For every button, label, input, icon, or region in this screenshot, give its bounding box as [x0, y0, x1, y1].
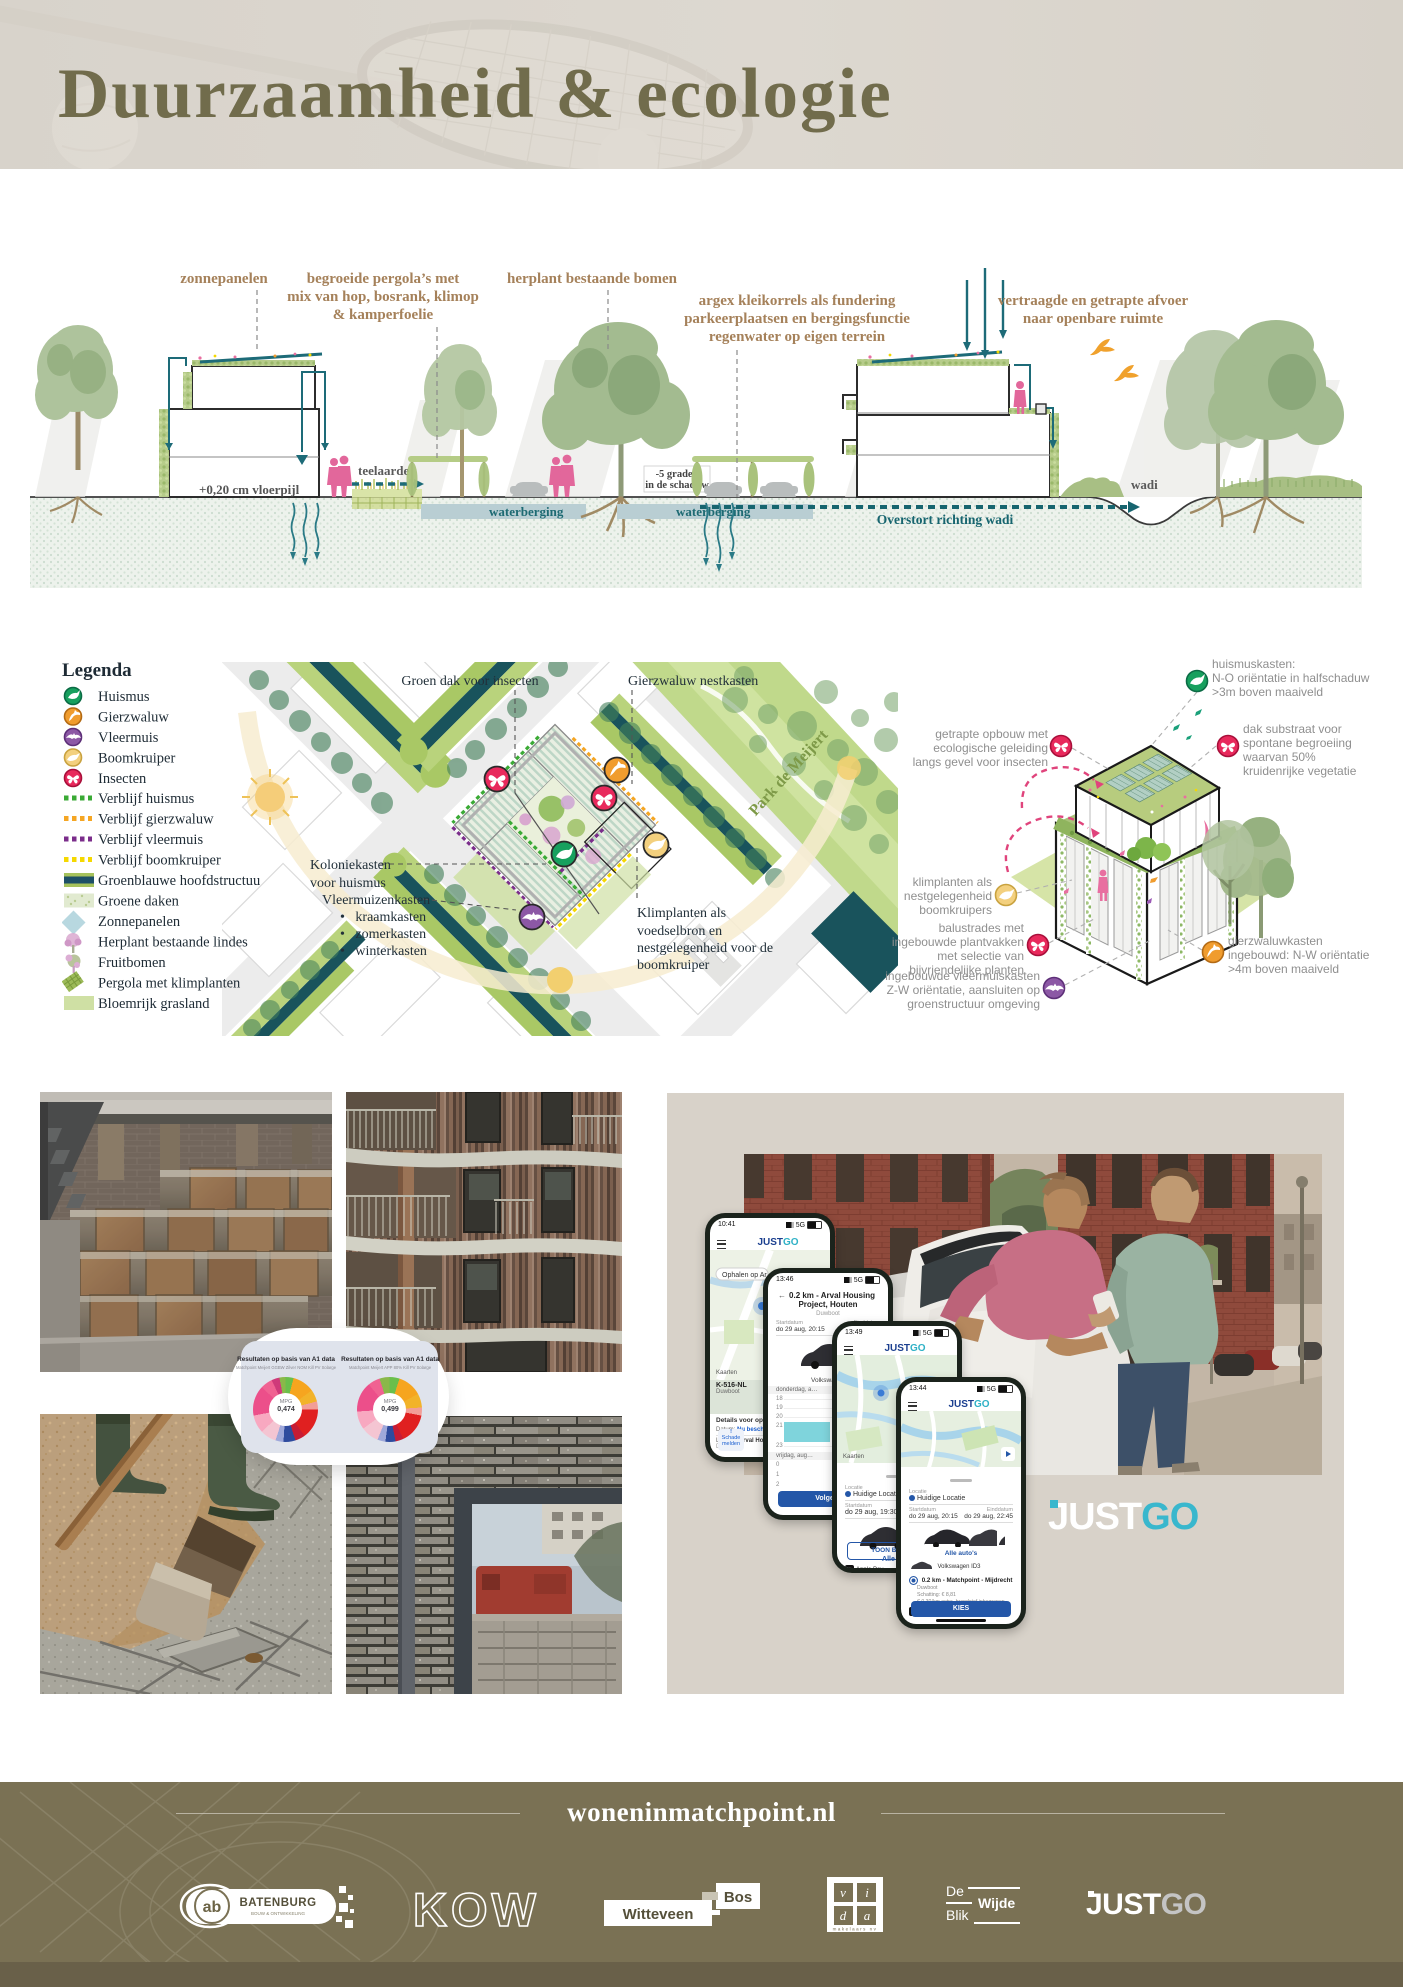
svg-text:Klimplanten als: Klimplanten als — [637, 906, 726, 921]
svg-text:parkeerplaatsen en bergingsfun: parkeerplaatsen en bergingsfunctie — [684, 311, 910, 327]
svg-text:herplant bestaande bomen: herplant bestaande bomen — [507, 271, 678, 287]
svg-text:BOUW & ONTWIKKELING: BOUW & ONTWIKKELING — [251, 1911, 306, 1916]
svg-text:Fruitbomen: Fruitbomen — [98, 955, 166, 971]
svg-text:a: a — [864, 1908, 871, 1923]
svg-text:Wijde: Wijde — [978, 1895, 1015, 1911]
svg-text:Huismus: Huismus — [98, 689, 150, 705]
svg-text:Pergola met klimplanten: Pergola met klimplanten — [98, 976, 241, 992]
svg-text:voedselbron en: voedselbron en — [637, 924, 722, 939]
svg-text:Groene daken: Groene daken — [98, 894, 180, 910]
svg-text:Bos: Bos — [724, 1889, 752, 1906]
svg-text:i: i — [865, 1885, 869, 1900]
svg-text:dak substraat voor: dak substraat voor — [1243, 722, 1342, 736]
svg-text:Verblijf huismus: Verblijf huismus — [98, 791, 195, 807]
svg-text:ingebouwde plantvakken: ingebouwde plantvakken — [892, 935, 1024, 949]
svg-text:ingebouwd: N-W oriëntatie: ingebouwd: N-W oriëntatie — [1228, 948, 1370, 962]
svg-text:Bloemrijk grasland: Bloemrijk grasland — [98, 996, 210, 1012]
svg-text:ab: ab — [203, 1899, 222, 1916]
svg-text:Witteveen: Witteveen — [623, 1906, 694, 1923]
svg-text:Blik: Blik — [946, 1907, 970, 1923]
svg-text:Verblijf boomkruiper: Verblijf boomkruiper — [98, 853, 221, 869]
svg-text:Verblijf vleermuis: Verblijf vleermuis — [98, 832, 203, 848]
svg-text:getrapte opbouw met: getrapte opbouw met — [935, 727, 1048, 741]
svg-text:N-O oriëntatie in halfschaduw: N-O oriëntatie in halfschaduw — [1212, 671, 1370, 685]
svg-text:+0,20 cm vloerpijl: +0,20 cm vloerpijl — [199, 482, 300, 497]
svg-text:balustrades met: balustrades met — [939, 921, 1025, 935]
svg-text:>4m boven maaiveld: >4m boven maaiveld — [1228, 962, 1339, 976]
svg-text:vertraagde en getrapte afvoer: vertraagde en getrapte afvoer — [998, 293, 1189, 309]
svg-text:huismuskasten:: huismuskasten: — [1212, 657, 1295, 671]
svg-text:ecologische geleiding: ecologische geleiding — [933, 741, 1048, 755]
svg-text:regenwater op eigen terrein: regenwater op eigen terrein — [709, 329, 886, 345]
svg-text:Boomkruiper: Boomkruiper — [98, 751, 175, 767]
svg-text:Herplant bestaande lindes: Herplant bestaande lindes — [98, 935, 248, 951]
svg-text:Insecten: Insecten — [98, 771, 147, 787]
svg-text:ingebouwde vleermuiskasten: ingebouwde vleermuiskasten — [885, 969, 1040, 983]
svg-text:BATENBURG: BATENBURG — [239, 1897, 316, 1909]
svg-text:Ophalen op Ar: Ophalen op Ar — [722, 1272, 767, 1279]
svg-text:mix van hop, bosrank, klimop: mix van hop, bosrank, klimop — [287, 289, 479, 305]
svg-text:& kamperfoelie: & kamperfoelie — [333, 307, 434, 323]
svg-text:waarvan 50%: waarvan 50% — [1242, 750, 1316, 764]
svg-text:langs gevel voor insecten: langs gevel voor insecten — [913, 755, 1048, 769]
svg-text:waterberging: waterberging — [489, 504, 564, 519]
svg-text:boomkruipers: boomkruipers — [919, 903, 992, 917]
svg-text:klimplanten als: klimplanten als — [913, 875, 992, 889]
svg-text:Verblijf gierzwaluw: Verblijf gierzwaluw — [98, 812, 214, 828]
svg-text:teelaarde: teelaarde — [358, 463, 409, 478]
svg-text:wadi: wadi — [1131, 477, 1158, 492]
svg-text:v: v — [840, 1885, 846, 1900]
svg-text:naar openbare ruimte: naar openbare ruimte — [1023, 311, 1164, 327]
svg-text:makelaars nv: makelaars nv — [833, 1927, 878, 1932]
svg-text:De: De — [946, 1883, 964, 1899]
svg-text:>3m boven maaiveld: >3m boven maaiveld — [1212, 685, 1323, 699]
svg-text:spontane begroeiing: spontane begroeiing — [1243, 736, 1352, 750]
svg-text:argex kleikorrels als funderin: argex kleikorrels als fundering — [699, 293, 896, 309]
svg-text:Groenblauwe hoofdstructuu: Groenblauwe hoofdstructuu — [98, 873, 260, 889]
svg-text:d: d — [840, 1908, 847, 1923]
svg-text:groenstructuur omgeving: groenstructuur omgeving — [907, 997, 1040, 1011]
svg-text:zonnepanelen: zonnepanelen — [180, 271, 268, 287]
svg-text:gierzwaluwkasten: gierzwaluwkasten — [1228, 934, 1323, 948]
svg-text:Gierzwaluw: Gierzwaluw — [98, 710, 169, 726]
svg-text:Gierzwaluw nestkasten: Gierzwaluw nestkasten — [628, 674, 758, 689]
svg-text:Vleermuis: Vleermuis — [98, 730, 159, 746]
svg-text:begroeide pergola’s met: begroeide pergola’s met — [307, 271, 459, 287]
svg-text:nestgelegenheid: nestgelegenheid — [904, 889, 992, 903]
svg-text:nestgelegenheid voor de: nestgelegenheid voor de — [637, 941, 773, 956]
svg-text:boomkruiper: boomkruiper — [637, 958, 710, 973]
svg-text:Z-W oriëntatie, aansluiten op: Z-W oriëntatie, aansluiten op — [887, 983, 1041, 997]
svg-text:kruidenrijke vegetatie: kruidenrijke vegetatie — [1243, 764, 1357, 778]
svg-text:Zonnepanelen: Zonnepanelen — [98, 914, 181, 930]
svg-text:met selectie van: met selectie van — [937, 949, 1024, 963]
svg-text:Overstort richting wadi: Overstort richting wadi — [877, 512, 1014, 527]
svg-text:Groen dak voor insecten: Groen dak voor insecten — [401, 674, 538, 689]
